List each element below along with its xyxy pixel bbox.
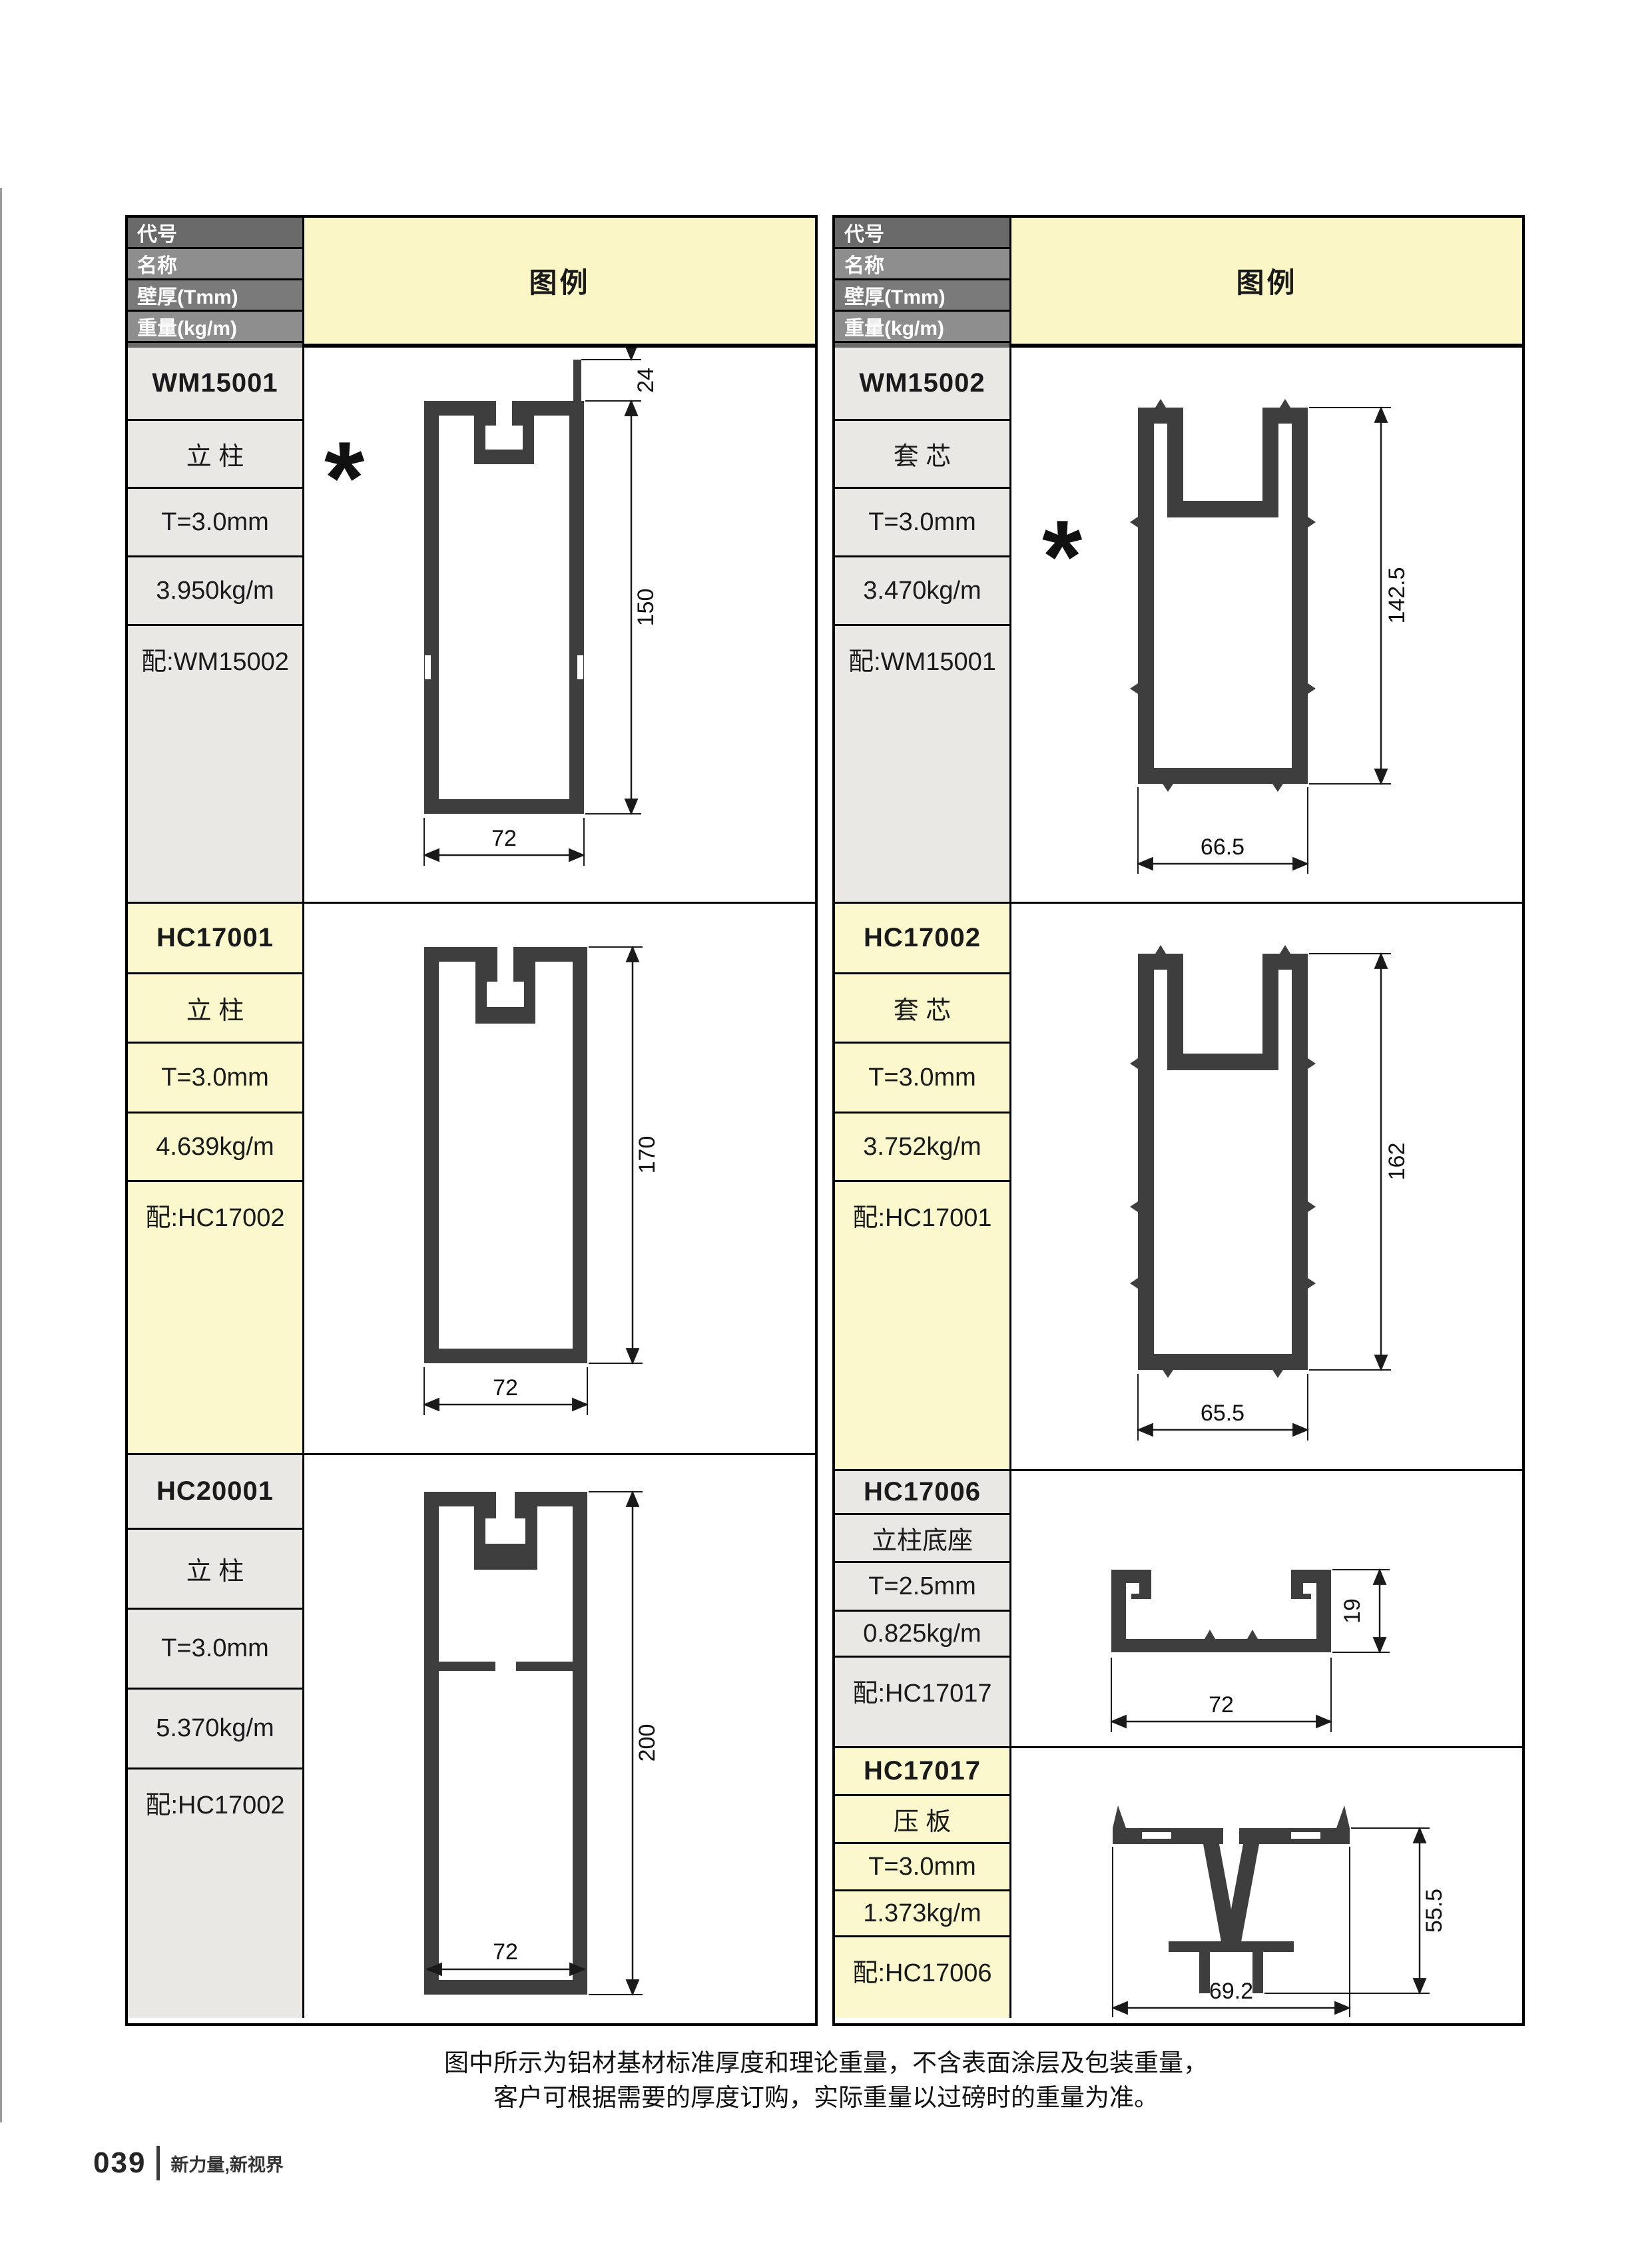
- section-wm15002: WM15002 套 芯 T=3.0mm 3.470kg/m 配:WM15001 …: [835, 346, 1522, 902]
- thickness-cell: T=2.5mm: [835, 1563, 1009, 1612]
- header-label-column: 代号 名称 壁厚(Tmm) 重量(kg/m) 配套: [128, 218, 304, 344]
- width-dim-label: 72: [493, 1939, 518, 1965]
- legend-header-cell: 图例: [304, 218, 815, 344]
- height-dim-label: 170: [635, 1136, 660, 1174]
- section-hc17001: HC17001 立 柱 T=3.0mm 4.639kg/m 配:HC17002 …: [128, 902, 815, 1453]
- figure-hc17002: 162 65.5: [1011, 904, 1522, 1469]
- match-cell: 配:HC17017: [835, 1658, 1009, 1746]
- page-number: 039: [93, 2146, 146, 2180]
- legend-header-cell: 图例: [1011, 218, 1522, 344]
- height-dim-label: 55.5: [1422, 1889, 1447, 1933]
- labels-hc17002: HC17002 套 芯 T=3.0mm 3.752kg/m 配:HC17001: [835, 904, 1011, 1469]
- section-hc20001: HC20001 立 柱 T=3.0mm 5.370kg/m 配:HC17002 …: [128, 1453, 815, 2018]
- name-cell: 立 柱: [128, 974, 302, 1044]
- header-label-column: 代号 名称 壁厚(Tmm) 重量(kg/m) 配套: [835, 218, 1011, 344]
- name-cell: 立 柱: [128, 1530, 302, 1610]
- header-row-code: 代号: [128, 218, 302, 249]
- header-row-weight: 重量(kg/m): [128, 312, 302, 343]
- thickness-cell: T=3.0mm: [835, 1044, 1009, 1114]
- table-header-right: 代号 名称 壁厚(Tmm) 重量(kg/m) 配套 图例: [835, 218, 1522, 346]
- width-dim-label: 72: [491, 826, 517, 851]
- figure-hc20001: 200 72: [304, 1455, 815, 2018]
- width-dimension: 72: [424, 818, 584, 866]
- profile-drawing-hc20001: 200 72: [304, 1455, 815, 2018]
- match-cell: 配:HC17001: [835, 1182, 1009, 1469]
- labels-hc20001: HC20001 立 柱 T=3.0mm 5.370kg/m 配:HC17002: [128, 1455, 304, 2018]
- code-cell: HC20001: [128, 1455, 302, 1530]
- width-dim-label: 65.5: [1201, 1401, 1244, 1426]
- figure-hc17001: 170 72: [304, 904, 815, 1453]
- labels-wm15001: WM15001 立 柱 T=3.0mm 3.950kg/m 配:WM15002: [128, 348, 304, 902]
- height-dim-label: 162: [1384, 1143, 1410, 1181]
- name-cell: 套 芯: [835, 421, 1009, 489]
- header-row-weight: 重量(kg/m): [835, 312, 1009, 343]
- header-row-thickness: 壁厚(Tmm): [835, 280, 1009, 312]
- weight-cell: 0.825kg/m: [835, 1612, 1009, 1658]
- weight-cell: 1.373kg/m: [835, 1891, 1009, 1937]
- labels-hc17017: HC17017 压 板 T=3.0mm 1.373kg/m 配:HC17006: [835, 1748, 1011, 2018]
- labels-hc17001: HC17001 立 柱 T=3.0mm 4.639kg/m 配:HC17002: [128, 904, 304, 1453]
- figure-wm15001: * 24 150 72: [304, 348, 815, 902]
- profile-drawing-wm15002: 142.5 66.5: [1011, 348, 1522, 900]
- match-cell: 配:HC17002: [128, 1182, 302, 1453]
- profile-drawing-wm15001: 24 150 72: [304, 348, 815, 900]
- fin-dim-label: 24: [633, 368, 659, 393]
- profile-cross-section: [424, 1492, 587, 1995]
- code-cell: HC17006: [835, 1471, 1009, 1515]
- height-dimension: 55.5: [1264, 1828, 1447, 1993]
- height-dimension: 142.5: [1309, 408, 1410, 784]
- profile-table-left: 代号 名称 壁厚(Tmm) 重量(kg/m) 配套 图例 WM15001 立 柱…: [125, 215, 818, 2026]
- figure-wm15002: * 142.5 66.5: [1011, 348, 1522, 902]
- profile-cross-section: [424, 947, 587, 1363]
- profile-cross-section: [1130, 945, 1316, 1378]
- name-cell: 立柱底座: [835, 1515, 1009, 1563]
- height-dimension: 200: [589, 1492, 660, 1995]
- name-cell: 立 柱: [128, 421, 302, 489]
- profile-cross-section: [1111, 1570, 1331, 1652]
- table-header-left: 代号 名称 壁厚(Tmm) 重量(kg/m) 配套 图例: [128, 218, 815, 346]
- footer-divider: [156, 2146, 160, 2180]
- width-dimension: 72: [1111, 1658, 1331, 1732]
- profile-cross-section: [1130, 399, 1316, 792]
- name-cell: 压 板: [835, 1796, 1009, 1844]
- match-cell: 配:WM15002: [128, 626, 302, 902]
- height-dimension: 19: [1332, 1570, 1390, 1652]
- header-row-code: 代号: [835, 218, 1009, 249]
- height-dim-label: 19: [1340, 1598, 1365, 1624]
- figure-hc17006: 19 72: [1011, 1471, 1522, 1746]
- height-dimension: 162: [1309, 954, 1410, 1370]
- weight-cell: 3.950kg/m: [128, 557, 302, 626]
- code-cell: WM15002: [835, 348, 1009, 421]
- profile-drawing-hc17002: 162 65.5: [1011, 904, 1522, 1467]
- profile-table-right: 代号 名称 壁厚(Tmm) 重量(kg/m) 配套 图例 WM15002 套 芯…: [832, 215, 1525, 2026]
- page-footer: 039 新力量,新视界: [93, 2146, 284, 2180]
- thickness-cell: T=3.0mm: [835, 489, 1009, 557]
- labels-wm15002: WM15002 套 芯 T=3.0mm 3.470kg/m 配:WM15001: [835, 348, 1011, 902]
- footnote: 图中所示为铝材基材标准厚度和理论重量，不含表面涂层及包装重量， 客户可根据需要的…: [0, 2046, 1652, 2115]
- width-dim-label: 66.5: [1201, 834, 1244, 860]
- section-wm15001: WM15001 立 柱 T=3.0mm 3.950kg/m 配:WM15002 …: [128, 346, 815, 902]
- section-hc17002: HC17002 套 芯 T=3.0mm 3.752kg/m 配:HC17001 …: [835, 902, 1522, 1469]
- height-dim-label: 150: [633, 589, 659, 627]
- section-hc17006: HC17006 立柱底座 T=2.5mm 0.825kg/m 配:HC17017…: [835, 1469, 1522, 1746]
- code-cell: HC17017: [835, 1748, 1009, 1796]
- profile-cross-section: [424, 360, 584, 814]
- weight-cell: 3.470kg/m: [835, 557, 1009, 626]
- header-row-name: 名称: [128, 249, 302, 280]
- profile-drawing-hc17006: 19 72: [1011, 1471, 1522, 1744]
- weight-cell: 4.639kg/m: [128, 1114, 302, 1182]
- height-dim-label: 200: [635, 1724, 660, 1762]
- labels-hc17006: HC17006 立柱底座 T=2.5mm 0.825kg/m 配:HC17017: [835, 1471, 1011, 1746]
- profile-cross-section: [1113, 1805, 1350, 1993]
- width-dimension: 66.5: [1138, 787, 1308, 874]
- width-dimension: 65.5: [1138, 1374, 1308, 1441]
- thickness-cell: T=3.0mm: [128, 489, 302, 557]
- footnote-line-1: 图中所示为铝材基材标准厚度和理论重量，不含表面涂层及包装重量，: [0, 2046, 1652, 2081]
- match-cell: 配:HC17002: [128, 1769, 302, 2018]
- height-dim-label: 142.5: [1384, 567, 1410, 623]
- height-dimension: 170: [589, 947, 660, 1363]
- footnote-line-2: 客户可根据需要的厚度订购，实际重量以过磅时的重量为准。: [0, 2081, 1652, 2115]
- header-row-thickness: 壁厚(Tmm): [128, 280, 302, 312]
- width-dim-label: 72: [1209, 1692, 1234, 1718]
- width-dim-label: 72: [493, 1375, 518, 1401]
- code-cell: WM15001: [128, 348, 302, 421]
- section-hc17017: HC17017 压 板 T=3.0mm 1.373kg/m 配:HC17006 …: [835, 1746, 1522, 2018]
- code-cell: HC17001: [128, 904, 302, 974]
- footer-tagline: 新力量,新视界: [170, 2150, 284, 2176]
- header-row-name: 名称: [835, 249, 1009, 280]
- figure-hc17017: 55.5 69.2: [1011, 1748, 1522, 2018]
- page-edge-line: [0, 188, 2, 2122]
- thickness-cell: T=3.0mm: [128, 1044, 302, 1114]
- thickness-cell: T=3.0mm: [128, 1610, 302, 1690]
- height-dimension: 24 150: [581, 348, 659, 814]
- match-cell: 配:HC17006: [835, 1937, 1009, 2018]
- thickness-cell: T=3.0mm: [835, 1844, 1009, 1891]
- profile-drawing-hc17001: 170 72: [304, 904, 815, 1451]
- width-dimension: 72: [427, 1939, 585, 1969]
- width-dim-label: 69.2: [1209, 1979, 1253, 2004]
- code-cell: HC17002: [835, 904, 1009, 974]
- profile-drawing-hc17017: 55.5 69.2: [1011, 1748, 1522, 2018]
- match-cell: 配:WM15001: [835, 626, 1009, 902]
- weight-cell: 5.370kg/m: [128, 1690, 302, 1769]
- weight-cell: 3.752kg/m: [835, 1114, 1009, 1182]
- width-dimension: 72: [424, 1367, 587, 1415]
- name-cell: 套 芯: [835, 974, 1009, 1044]
